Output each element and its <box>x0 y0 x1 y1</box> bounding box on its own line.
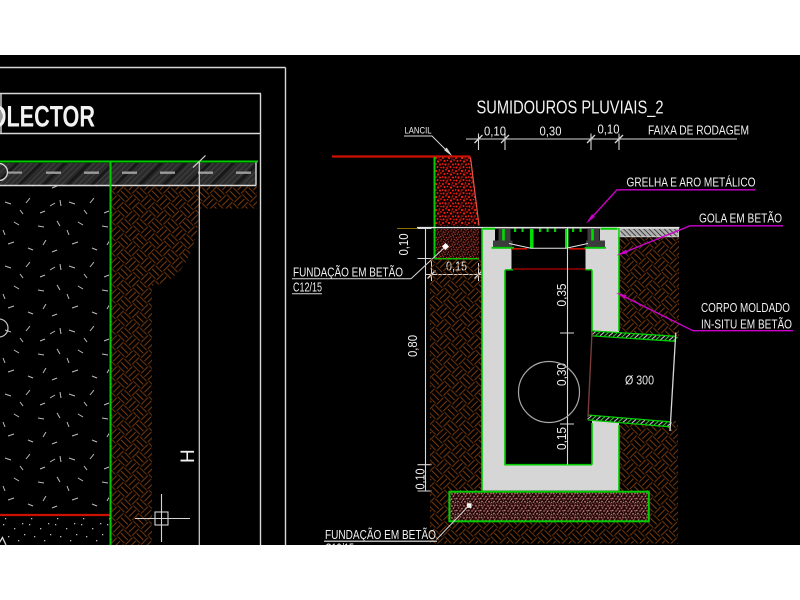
svg-text:FUNDAÇÃO EM BETÃO: FUNDAÇÃO EM BETÃO <box>293 266 403 280</box>
svg-text:FAIXA DE RODAGEM: FAIXA DE RODAGEM <box>648 123 749 138</box>
svg-text:0,10: 0,10 <box>484 124 506 139</box>
svg-text:GOLA EM BETÃO: GOLA EM BETÃO <box>699 211 782 226</box>
svg-text:CORPO MOLDADO: CORPO MOLDADO <box>701 300 790 315</box>
svg-text:COLECTOR: COLECTOR <box>0 101 95 134</box>
svg-text:H: H <box>178 449 199 463</box>
svg-text:0,35: 0,35 <box>554 284 569 307</box>
svg-text:LANCIL: LANCIL <box>405 126 432 137</box>
svg-text:GRELHA E ARO METÁLICO: GRELHA E ARO METÁLICO <box>627 175 756 190</box>
svg-text:0,15: 0,15 <box>554 427 569 450</box>
svg-text:0,10: 0,10 <box>598 122 620 137</box>
svg-text:0,30: 0,30 <box>554 363 569 386</box>
svg-text:C12/15: C12/15 <box>293 281 322 295</box>
svg-text:0,80: 0,80 <box>405 335 420 357</box>
svg-text:Ø 300: Ø 300 <box>625 373 654 388</box>
svg-text:0,10: 0,10 <box>396 234 411 256</box>
svg-text:SUMIDOUROS PLUVIAIS_2: SUMIDOUROS PLUVIAIS_2 <box>477 97 664 119</box>
svg-text:0,10: 0,10 <box>413 469 428 490</box>
svg-text:IN-SITU EM BETÃO: IN-SITU EM BETÃO <box>701 317 792 332</box>
svg-text:0,30: 0,30 <box>540 124 562 139</box>
